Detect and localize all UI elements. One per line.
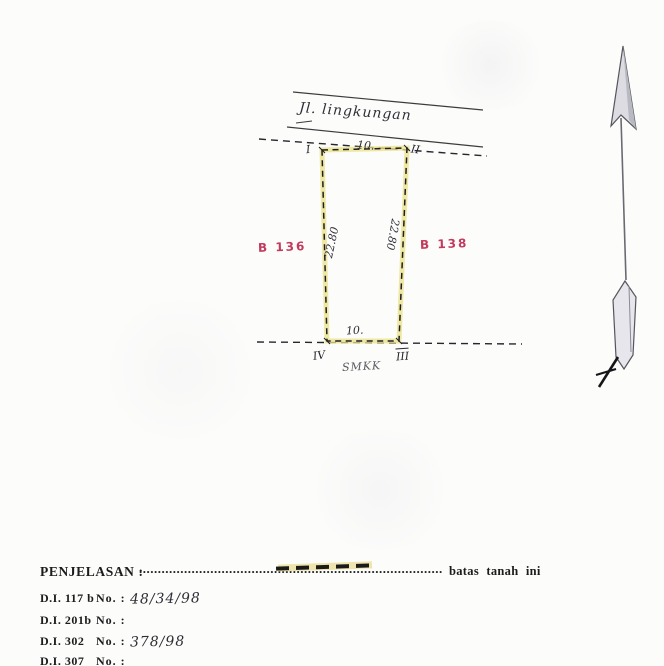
record-no-label: No. : [96,613,126,628]
record-no-label: No. : [96,591,126,606]
record-label: D.I. 307 [40,654,84,666]
record-no-label: No. : [96,634,126,649]
record-value: 378/98 [130,634,186,651]
note-below-parcel: SMKK [342,359,382,374]
corner-point-IV: IV [312,348,326,363]
record-row: D.I. 302 No. : 378/98 [0,634,664,652]
parcel-id-right: B 138 [420,236,469,252]
scanned-survey-document: Jl. lingkungan I II III IV 10. 10. 22.80… [0,0,664,666]
parcel-id-left: B 136 [258,239,307,255]
record-label: D.I. 201b [40,613,92,628]
record-label: D.I. 302 [40,634,84,649]
dimension-bottom: 10. [346,324,364,338]
record-label: D.I. 117 b [40,591,94,606]
dimension-right: 22.80 [384,218,402,251]
record-value: 48/34/98 [130,590,201,607]
corner-point-II: II [410,142,420,156]
legend-meaning: batas tanah ini [449,564,541,579]
scan-blot [90,300,270,440]
scan-blot [430,20,550,110]
boundary-symbol [276,560,374,572]
record-row: D.I. 201b No. : [0,613,664,631]
north-arrow-icon [596,46,636,387]
record-row: D.I. 307 No. : [0,654,664,666]
record-no-label: No. : [96,654,126,666]
legend-title: PENJELASAN : [40,564,144,580]
corner-point-III: III [395,348,409,364]
road-name-label: Jl. lingkungan [299,100,413,124]
record-row: D.I. 117 b No. : 48/34/98 [0,591,664,609]
scan-blot [300,430,460,550]
corner-point-I: I [305,143,311,156]
dimension-left: 22.80 [322,226,341,260]
dimension-top: 10. [357,138,375,152]
